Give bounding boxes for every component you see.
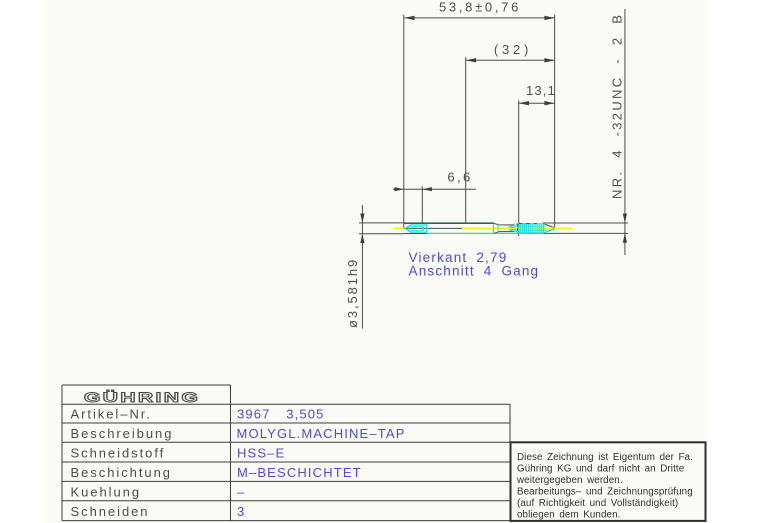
svg-text:Schneidstoff: Schneidstoff bbox=[71, 445, 166, 460]
svg-text:GÜHRING: GÜHRING bbox=[84, 390, 200, 406]
svg-text:Anschnitt 4 Gang: Anschnitt 4 Gang bbox=[409, 264, 540, 279]
svg-text:3: 3 bbox=[237, 504, 245, 519]
svg-text:Diese Zeichnung ist Eigentum d: Diese Zeichnung ist Eigentum der Fa. bbox=[517, 452, 693, 463]
svg-text:HSS–E: HSS–E bbox=[237, 445, 285, 460]
svg-text:obliegen dem Kunden.: obliegen dem Kunden. bbox=[517, 509, 620, 520]
svg-text:6,6: 6,6 bbox=[447, 170, 472, 185]
svg-text:3967 3,505: 3967 3,505 bbox=[237, 407, 325, 422]
svg-text:Beschreibung: Beschreibung bbox=[71, 426, 174, 441]
svg-text:Beschichtung: Beschichtung bbox=[71, 465, 172, 480]
svg-text:NR. 4 -32UNC - 2 B: NR. 4 -32UNC - 2 B bbox=[610, 13, 625, 199]
svg-text:Kuehlung: Kuehlung bbox=[71, 485, 142, 500]
svg-text:Schneiden: Schneiden bbox=[71, 504, 150, 519]
svg-text:(32): (32) bbox=[494, 42, 532, 57]
svg-text:Bearbeitungs– und Zeichnungspr: Bearbeitungs– und Zeichnungsprüfung bbox=[517, 486, 693, 497]
svg-text:MOLYGL.MACHINE–TAP: MOLYGL.MACHINE–TAP bbox=[237, 426, 406, 441]
svg-text:M–BESCHICHTET: M–BESCHICHTET bbox=[237, 465, 362, 480]
svg-text:Artikel–Nr.: Artikel–Nr. bbox=[71, 407, 152, 422]
svg-text:–: – bbox=[237, 485, 245, 500]
svg-text:Gühring KG und darf nicht an D: Gühring KG und darf nicht an Dritte bbox=[517, 463, 685, 474]
svg-text:(auf Richtigkeit und Vollständ: (auf Richtigkeit und Vollständigkeit) bbox=[517, 498, 678, 509]
svg-text:13,1: 13,1 bbox=[526, 83, 556, 98]
svg-text:53,8±0,76: 53,8±0,76 bbox=[439, 0, 521, 15]
svg-text:ø3,581h9: ø3,581h9 bbox=[345, 258, 360, 328]
svg-text:weitergegeben werden.: weitergegeben werden. bbox=[516, 475, 623, 486]
